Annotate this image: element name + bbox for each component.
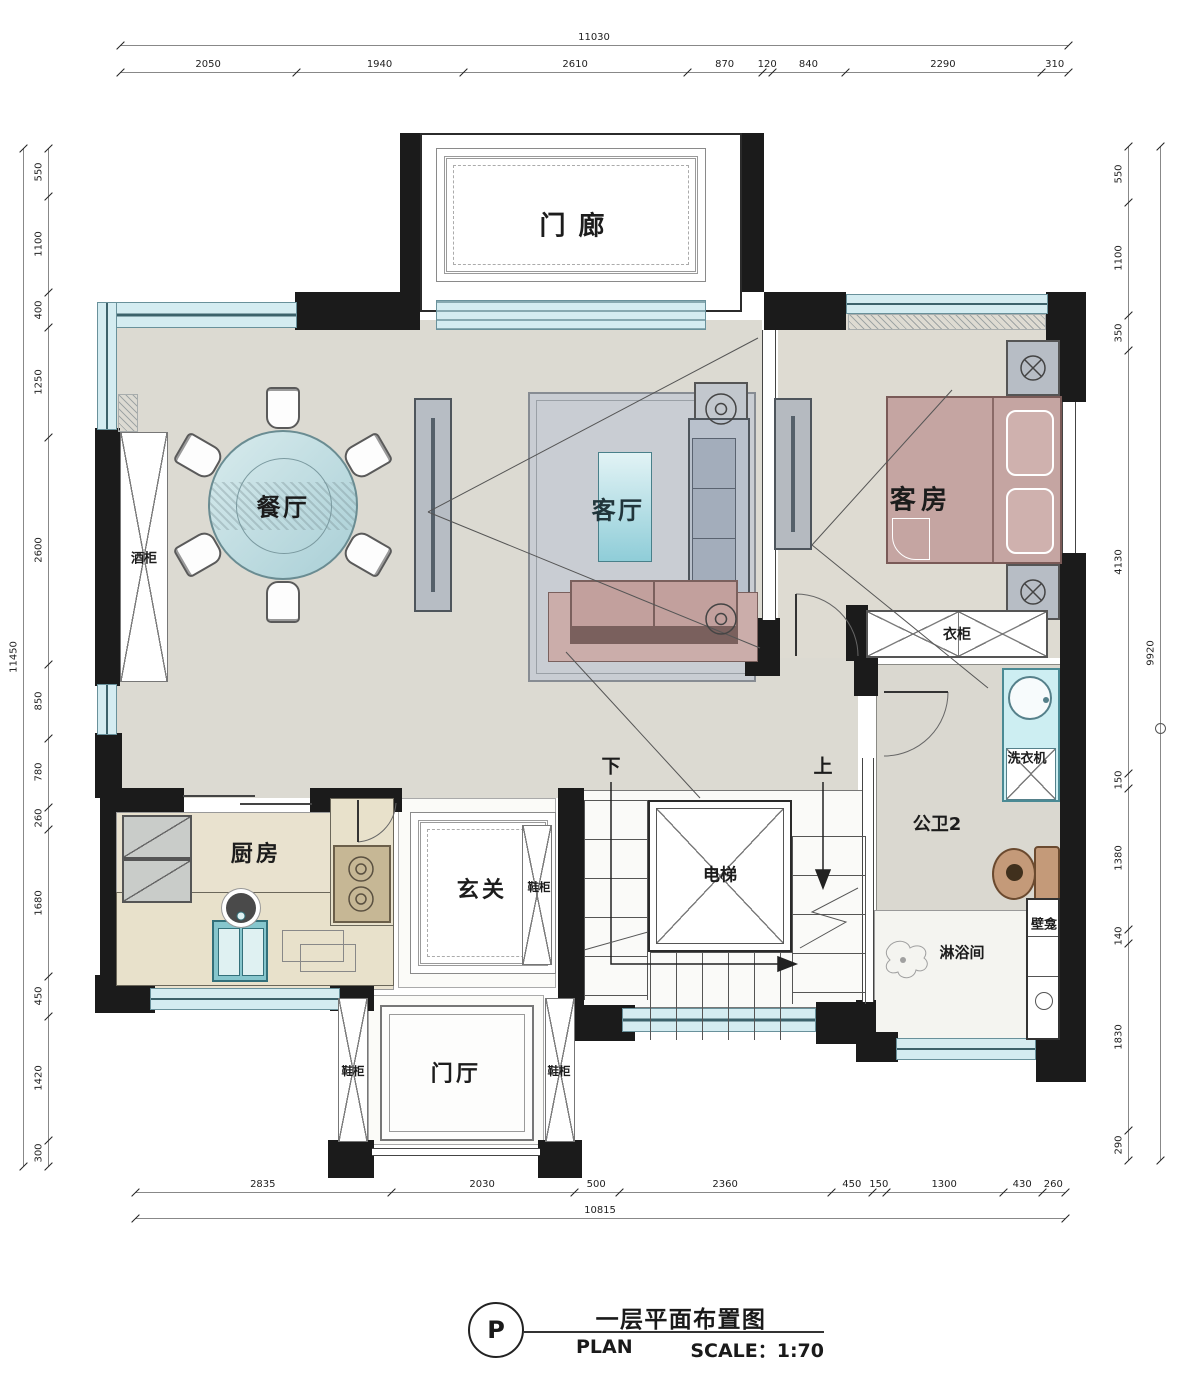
room-label-porch: 门廊 — [539, 206, 617, 243]
plan-title-en-row: PLAN SCALE：1:70 — [576, 1336, 824, 1363]
window-band — [150, 988, 340, 1010]
dimension-line — [135, 1192, 1065, 1193]
toilet-drain — [1006, 864, 1023, 881]
niche-divider — [1028, 976, 1058, 977]
bed-fold-line — [992, 398, 994, 562]
curtain-hatch — [118, 394, 138, 432]
wall-segment — [1060, 345, 1086, 402]
wall-segment — [764, 292, 846, 330]
pillow — [1006, 488, 1054, 554]
dining-chair — [266, 581, 300, 623]
floor-shower — [874, 910, 1028, 1040]
dimension-label: 450 — [842, 1179, 861, 1190]
dimension-label: 1830 — [1114, 1024, 1125, 1049]
dimension-label: 260 — [34, 808, 45, 827]
niche-sink — [1035, 992, 1053, 1010]
wall-thin — [1062, 402, 1076, 553]
plan-marker-letter: P — [487, 1316, 505, 1344]
room-label-guest: 客房 — [890, 480, 952, 517]
dimension-strip-top: 110302050194026108701208402290310 — [120, 25, 1068, 75]
dimension-label: 450 — [34, 986, 45, 1005]
wall-segment — [95, 428, 120, 686]
room-label-shower: 淋浴间 — [939, 942, 984, 963]
dimension-strip-right: 99205501100350413015013801401830290 — [1114, 146, 1174, 1160]
dimension-label: 840 — [799, 59, 818, 70]
stair-label-down: 下 — [601, 752, 620, 779]
stove — [333, 845, 391, 923]
fixture-label-shoe-cabinet: 鞋柜 — [342, 1063, 365, 1079]
room-label-living: 客厅 — [592, 491, 645, 526]
porch-entry-steps — [436, 300, 706, 330]
dimension-label: 1680 — [34, 890, 45, 915]
niche-divider — [1028, 936, 1058, 937]
loveseat — [570, 580, 738, 644]
dimension-label: 260 — [1044, 1179, 1063, 1190]
wall-segment — [1060, 665, 1086, 1040]
wall-segment — [400, 133, 420, 312]
dimension-label: 1250 — [34, 369, 45, 394]
wall-segment — [295, 292, 420, 330]
fridge — [122, 815, 192, 859]
dimension-label: 2050 — [195, 59, 220, 70]
fixture-label-niche: 壁龛 — [1031, 914, 1057, 933]
stair-flight-bottom — [650, 952, 792, 1040]
dimension-label: 550 — [34, 163, 45, 182]
wall-segment — [112, 788, 184, 812]
dimension-label: 350 — [1114, 323, 1125, 342]
room-label-bath: 公卫2 — [913, 810, 962, 836]
dimension-label: 9920 — [1146, 640, 1157, 665]
room-label-foyer: 门厅 — [431, 1056, 482, 1088]
dimension-label: 290 — [1114, 1136, 1125, 1155]
plan-marker-bubble: P — [468, 1302, 524, 1358]
room-label-kitchen: 厨房 — [231, 836, 282, 868]
dimension-label: 10815 — [584, 1205, 616, 1216]
dimension-label: 400 — [34, 300, 45, 319]
pillow — [1006, 410, 1054, 476]
dimension-label: 1380 — [1114, 846, 1125, 871]
dimension-label: 1940 — [367, 59, 392, 70]
plan-scale: SCALE：1:70 — [690, 1336, 824, 1363]
dimension-line — [120, 45, 1068, 46]
dimension-label: 11030 — [578, 32, 610, 43]
wall-segment — [742, 133, 764, 292]
sink-basin — [218, 928, 240, 976]
fixture-label-wardrobe: 衣柜 — [943, 624, 971, 644]
toilet-tank — [1034, 846, 1060, 902]
wall-segment — [1046, 292, 1086, 347]
dimension-line — [1128, 146, 1129, 1160]
dimension-line — [120, 72, 1068, 73]
dimension-line — [135, 1218, 1065, 1219]
blanket-corner — [892, 518, 930, 560]
dimension-line — [1160, 146, 1161, 1160]
dimension-label: 4130 — [1114, 549, 1125, 574]
dimension-label: 780 — [34, 763, 45, 782]
dimension-label: 870 — [715, 59, 734, 70]
dimension-label: 1100 — [1114, 246, 1125, 271]
dimension-label: 11450 — [9, 641, 20, 673]
dimension-line — [48, 148, 49, 1166]
dimension-label: 2360 — [712, 1179, 737, 1190]
sink-basin — [242, 928, 264, 976]
entry-door-line — [372, 1148, 540, 1156]
dimension-label: 2030 — [469, 1179, 494, 1190]
dimension-label: 310 — [1045, 59, 1064, 70]
wardrobe-cell — [959, 612, 1046, 656]
fixture-label-wine-cabinet: 酒柜 — [131, 548, 157, 567]
stair-label-up: 上 — [813, 752, 832, 779]
dimension-label: 850 — [34, 692, 45, 711]
kitchen-sink — [212, 920, 268, 982]
window-band — [113, 302, 297, 328]
dimension-label: 150 — [869, 1179, 888, 1190]
fridge — [122, 859, 192, 903]
window-band — [97, 684, 117, 735]
dimension-label: 2835 — [250, 1179, 275, 1190]
wall-segment — [558, 788, 584, 1008]
room-label-elevator: 电梯 — [703, 861, 737, 886]
plan-title-zh: 一层平面布置图 — [538, 1300, 824, 1334]
room-label-entry: 玄关 — [457, 872, 508, 904]
title-block: P 一层平面布置图 PLAN SCALE：1:70 — [468, 1300, 824, 1364]
sideboard — [414, 398, 452, 612]
wall-segment — [1060, 553, 1086, 665]
nightstand — [1006, 340, 1060, 396]
wall-segment — [328, 1140, 374, 1178]
axis-bubble — [1155, 723, 1166, 734]
fixture-label-shoe-cabinet: 鞋柜 — [528, 879, 551, 895]
dimension-label: 2290 — [930, 59, 955, 70]
wall-segment — [854, 652, 878, 696]
dimension-label: 500 — [587, 1179, 606, 1190]
wall-segment — [538, 1140, 582, 1178]
tv-board — [774, 398, 812, 550]
sliding-door-line — [240, 803, 312, 805]
dimension-label: 430 — [1013, 1179, 1032, 1190]
dimension-label: 150 — [1114, 771, 1125, 790]
dimension-label: 550 — [1114, 165, 1125, 184]
wall-segment — [100, 796, 116, 982]
dimension-label: 1300 — [931, 1179, 956, 1190]
wall-segment — [862, 1032, 898, 1062]
fixture-label-shoe-cabinet: 鞋柜 — [548, 1063, 571, 1079]
dimension-label: 2610 — [562, 59, 587, 70]
shoe-cabinet — [522, 825, 552, 965]
tv-board-line — [791, 416, 795, 532]
dimension-label: 1420 — [34, 1065, 45, 1090]
stair-flight-left — [584, 800, 648, 1000]
dimension-label: 300 — [34, 1143, 45, 1162]
dimension-strip-left: 1145055011004001250260085078026016804501… — [8, 148, 68, 1166]
toilet-bowl — [992, 848, 1036, 900]
window-band — [846, 294, 1048, 314]
window-band — [97, 302, 117, 430]
plan-title-en: PLAN — [576, 1336, 633, 1363]
dimension-label: 2600 — [34, 538, 45, 563]
cutting-board — [300, 944, 356, 972]
floorplan-page: 110302050194026108701208402290310 108152… — [0, 0, 1200, 1400]
dimension-label: 140 — [1114, 927, 1125, 946]
dimension-label: 1100 — [34, 231, 45, 256]
sliding-door-line — [183, 795, 255, 797]
room-label-dining: 餐厅 — [257, 488, 310, 523]
dimension-strip-bottom: 108152835203050023604501501300430260 — [135, 1178, 1065, 1224]
dimension-line — [23, 148, 24, 1166]
dining-chair — [266, 387, 300, 429]
kitchen-stool — [226, 893, 256, 923]
sofa-cushions — [692, 438, 736, 590]
fixture-label-washer: 洗衣机 — [1007, 748, 1046, 767]
window-band — [896, 1038, 1036, 1060]
curtain-hatch — [848, 314, 1046, 330]
stair-flight-right — [792, 836, 866, 1004]
wash-basin — [1008, 676, 1052, 720]
sideboard-line — [431, 418, 435, 592]
dimension-label: 120 — [758, 59, 777, 70]
